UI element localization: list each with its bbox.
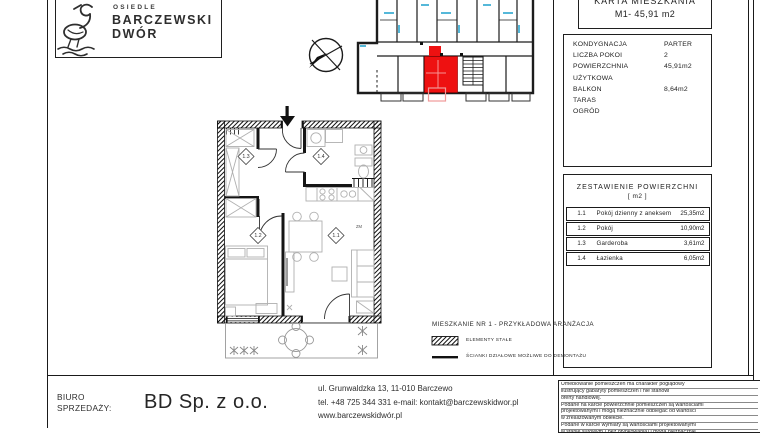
floor-plan (218, 106, 382, 358)
sales-office-line2: SPRZEDAŻY: (57, 403, 112, 414)
highlighted-unit-entry (429, 46, 441, 56)
address-street: ul. Grunwaldzka 13, 11-010 Barczewo (318, 382, 518, 396)
plan-graphics (0, 0, 760, 428)
sales-office-line1: BIURO (57, 392, 112, 403)
address-contact: tel. +48 725 344 331 e-mail: kontakt@bar… (318, 396, 518, 410)
room-label-1-3: 1.3 (236, 154, 256, 160)
terrace (226, 323, 378, 359)
stork-logo-icon (58, 5, 94, 56)
company-name: BD Sp. z o.o. (144, 391, 268, 414)
site-plan (358, 0, 533, 101)
apartment-card-page: { "logo": { "estate": "OSIEDLE", "name_l… (0, 0, 760, 428)
sales-office-label: BIURO SPRZEDAŻY: (57, 392, 112, 414)
legend-title: MIESZKANIE NR 1 - PRZYKŁADOWA ARANŻACJA (432, 321, 594, 328)
window-marks (360, 5, 519, 46)
highlighted-unit (425, 57, 458, 93)
staircase (463, 57, 483, 85)
zm-label: ZM (356, 224, 362, 229)
address-block: ul. Grunwaldzka 13, 11-010 Barczewo tel.… (318, 382, 518, 423)
legend-hatch-swatch (432, 337, 458, 346)
legend-line-swatch (432, 356, 458, 358)
room-label-1-1: 1.1 (326, 233, 346, 239)
address-website: www.barczewskidwór.pl (318, 409, 518, 423)
legend-demountable-label: ŚCIANKI DZIAŁOWE MOŻLIWE DO DEMONTAŻU (466, 354, 586, 359)
room-label-1-2: 1.2 (248, 233, 268, 239)
compass-icon (309, 39, 343, 72)
room-label-1-4: 1.4 (311, 154, 331, 160)
legend-fixed-label: ELEMENTY STAŁE (466, 338, 512, 343)
